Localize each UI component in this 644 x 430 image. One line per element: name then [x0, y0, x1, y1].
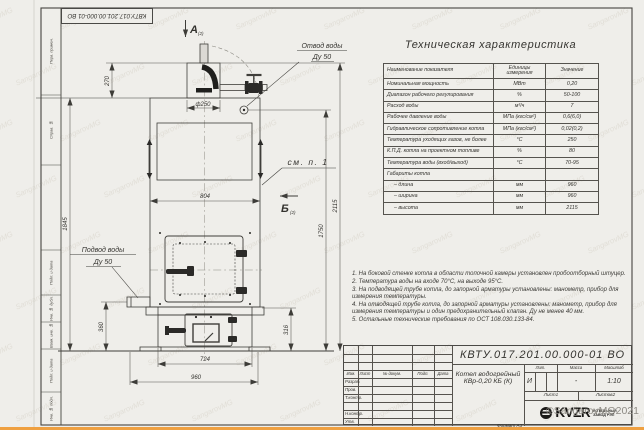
- spec-row-name: Рабочее давление воды: [384, 113, 494, 124]
- spec-row-units: м³/ч: [494, 102, 546, 113]
- spec-row-name: Гидравлическое сопротивление котла: [384, 124, 494, 135]
- inlet-label-1: Подвод воды: [82, 246, 125, 254]
- spec-row-units: МПа (кгс/см²): [494, 124, 546, 135]
- spec-row-units: мм: [494, 192, 546, 203]
- dim-dia250: ф250: [195, 102, 211, 108]
- inlet-label-2: Ду 50: [93, 259, 112, 266]
- spec-row-units: МВт: [494, 79, 546, 90]
- technical-notes: 1. На боковой стенке котла в области топ…: [352, 271, 635, 326]
- sampling-port-icon: [240, 106, 248, 114]
- dim-804: 804: [200, 194, 211, 200]
- tb-document-code: КВТУ.017.201.00.000-01 ВО: [452, 346, 633, 364]
- spec-row-value: 250: [546, 135, 599, 146]
- note-item: 3. На подводящей трубе котла, до запорно…: [352, 287, 635, 301]
- tb-row-nkontr: Н.контр.: [345, 410, 372, 418]
- note-item: 4. На отводящей трубе котла, до запорной…: [352, 302, 635, 316]
- spec-row-units: °С: [494, 135, 546, 146]
- dim-724: 724: [200, 357, 211, 363]
- spec-row-units: мм: [494, 181, 546, 192]
- spec-table-title: Техническая характеристика: [383, 39, 598, 51]
- drawing-sheet: SangarovMGSangarovMGSangarovMGSangarovMG…: [0, 0, 644, 430]
- spec-row-units: мм: [494, 203, 546, 214]
- note-item: 2. Температура воды на входе 70°С, на вы…: [352, 279, 635, 286]
- tb-row-tkontr: Т.контр.: [345, 394, 372, 402]
- frame-label-inv-dubl: Инв. № дубл.: [42, 295, 61, 322]
- tb-mass-value: -: [557, 372, 595, 391]
- frame-label-inv-podl: Инв. № подл.: [42, 392, 61, 425]
- view-a-label: А: [189, 24, 198, 36]
- spec-row-value: 0,20: [546, 79, 599, 90]
- view-b-sheet: (2): [290, 210, 296, 215]
- dim-960: 960: [191, 375, 202, 381]
- spec-row-name: К.П.Д. котла на проектном топливе: [384, 147, 494, 158]
- boiler-front-view: [36, 98, 334, 351]
- tb-lit-label: Лит.: [524, 364, 557, 372]
- dim-270: 270: [105, 75, 111, 87]
- dim-360: 360: [99, 321, 105, 332]
- tb-mass-label: Масса: [557, 364, 595, 372]
- spec-row-units: °С: [494, 158, 546, 169]
- tb-sheet-value: 1: [556, 393, 559, 398]
- tb-document-title: Котел водогрейный КВр-0,20 КБ (К): [452, 366, 524, 392]
- spec-row-name: Диапазон рабочего регулирования: [384, 90, 494, 101]
- spec-row-value: 0,6(6,0): [546, 113, 599, 124]
- dim-1845: 1845: [63, 217, 69, 231]
- copyright-watermark: ©SangarovMG2021: [546, 405, 639, 417]
- tb-col-podp: Подп.: [412, 370, 434, 378]
- spec-row-units: МПа (кгс/см²): [494, 113, 546, 124]
- spec-row-value: [546, 169, 599, 180]
- door-handle-icon: [166, 266, 194, 276]
- spec-row-name: Габариты котла: [384, 169, 494, 180]
- tb-row-utv: Утв.: [345, 418, 372, 426]
- spec-row-value: 960: [546, 192, 599, 203]
- tb-scale-value: 1:10: [595, 372, 633, 391]
- frame-label-perv-primen: Перв. примен.: [42, 8, 61, 95]
- loading-door: [159, 232, 251, 305]
- tb-sheets-value: 2: [613, 393, 616, 398]
- tb-sheet-label: Лист: [544, 393, 556, 398]
- dim-1750: 1750: [319, 224, 325, 238]
- dimension-texts: ф250 270 1845 804 360 316 1750 2115 724 …: [63, 75, 339, 381]
- tb-sheets-label: Листов: [596, 393, 613, 398]
- tb-sheets-cell: Листов 2: [578, 391, 633, 400]
- spec-row-name: Температура уходящих газов, не более: [384, 135, 494, 146]
- spec-col-name: Наименование показателя: [384, 64, 494, 79]
- ash-door: [165, 314, 237, 346]
- top-designation-stamp: КВТУ.017.201.00.000-01 ВО: [61, 8, 153, 24]
- spec-row-units: %: [494, 90, 546, 101]
- spec-row-value: 50-100: [546, 90, 599, 101]
- note-item: 1. На боковой стенке котла в области топ…: [352, 271, 635, 278]
- dim-2115: 2115: [333, 199, 339, 214]
- outlet-label-2: Ду 50: [312, 54, 331, 61]
- panel-clamps: [150, 144, 261, 174]
- spec-row-value: 80: [546, 147, 599, 158]
- spec-row-name: Номинальная мощность: [384, 79, 494, 90]
- tb-col-list: Лист: [358, 370, 372, 378]
- tb-row-blank: [345, 402, 372, 410]
- tb-lit-value: И: [524, 372, 535, 391]
- frame-label-podp-data-2: Подп. и дата: [42, 349, 61, 392]
- spec-row-value: 7: [546, 102, 599, 113]
- tb-col-data: Дата: [434, 370, 452, 378]
- frame-label-podp-data-1: Подп. и дата: [42, 250, 61, 295]
- section-marker-a: А (2): [186, 20, 205, 37]
- spec-row-value: 960: [546, 181, 599, 192]
- dimension-lines: [70, 63, 345, 385]
- tb-scale-label: Масштаб: [595, 364, 633, 372]
- see-note-label: см. п. 1: [288, 157, 329, 167]
- section-marker-b: Б (2): [280, 196, 298, 215]
- spec-row-units: %: [494, 147, 546, 158]
- tb-title-line2: КВр-0,20 КБ (К): [464, 379, 513, 386]
- door-hinges-icon: [236, 250, 247, 294]
- ash-hinges-icon: [195, 316, 237, 342]
- callout-labels: Отвод воды Ду 50 Подвод воды Ду 50 см. п…: [70, 42, 347, 298]
- note-item: 5. Остальные технические требования по О…: [352, 317, 635, 324]
- ash-handle-icon: [165, 326, 186, 335]
- view-a-sheet: (2): [198, 31, 204, 36]
- spec-col-units: Единицы измерения: [494, 64, 546, 79]
- tb-col-izm: Изм.: [344, 370, 358, 378]
- view-b-label: Б: [281, 203, 289, 215]
- outlet-label-1: Отвод воды: [302, 42, 344, 50]
- tb-row-prov: Пров.: [345, 386, 372, 394]
- spec-row-name: Расход воды: [384, 102, 494, 113]
- spec-row-name: – длина: [384, 181, 494, 192]
- spec-table: Наименование показателя Единицы измерени…: [383, 63, 599, 215]
- spec-row-name: Температура воды (вход/выход): [384, 158, 494, 169]
- spec-row-value: 70-95: [546, 158, 599, 169]
- spec-row-name: – высота: [384, 203, 494, 214]
- spec-col-value: Значение: [546, 64, 599, 79]
- spec-row-name: – ширина: [384, 192, 494, 203]
- spec-row-units: [494, 169, 546, 180]
- frame-label-vzam-inv: Взам. инв. №: [42, 322, 61, 349]
- spec-row-value: 2115: [546, 203, 599, 214]
- dim-316: 316: [284, 324, 290, 335]
- frame-label-sprav-no: Справ. №: [42, 95, 61, 165]
- outlet-valve-icon: [245, 75, 267, 94]
- tb-row-razrab: Разраб.: [345, 378, 372, 386]
- tb-col-docnum: № докум.: [372, 370, 412, 378]
- spec-row-value: 0,02(0,2): [546, 124, 599, 135]
- tb-sheet-cell: Лист 1: [524, 391, 578, 400]
